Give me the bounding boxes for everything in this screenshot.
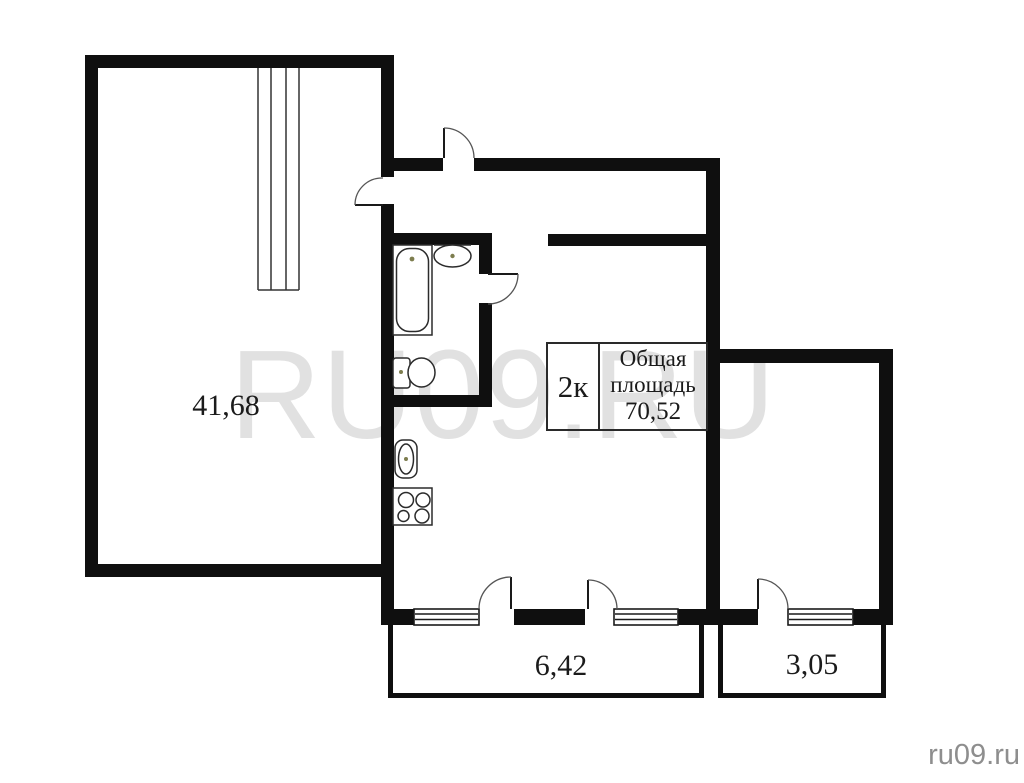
wall-segment — [381, 204, 394, 625]
floor-plan-page: RU09.RU — [0, 0, 1024, 783]
total-area-word-2: площадь — [610, 372, 695, 398]
total-area-box: 2к Общая площадь 70,52 — [546, 342, 708, 431]
wall-segment — [474, 158, 720, 171]
bath-sink-drain — [450, 254, 454, 258]
wall-segment — [381, 55, 394, 177]
bath-sink — [434, 245, 471, 267]
balcony-main-area-label: 6,42 — [535, 649, 588, 683]
apartment-type-label: 2к — [548, 344, 600, 429]
total-area-value: 70,52 — [625, 398, 681, 426]
watermark-corner: ru09.ru — [916, 740, 1020, 772]
wall-segment — [85, 55, 394, 68]
balcony-door-middle — [588, 580, 617, 609]
toilet-dot — [399, 370, 403, 374]
balcony-door-right-room — [758, 579, 788, 609]
wall-segment — [548, 234, 706, 246]
wall-segment-thin — [388, 625, 393, 698]
fixtures — [393, 245, 471, 525]
kitchen-sink-drain — [404, 457, 408, 461]
wall-segment — [678, 609, 758, 625]
wall-segment-thin — [718, 693, 886, 698]
wall-segment — [394, 395, 492, 407]
window — [788, 609, 853, 625]
living-room-area-label: 41,68 — [192, 389, 260, 423]
wall-segment-thin — [388, 693, 704, 698]
toilet — [393, 358, 435, 388]
wall-segment — [85, 564, 394, 577]
bathroom-door — [488, 274, 518, 304]
wall-segment — [85, 55, 98, 577]
total-area-cell: Общая площадь 70,52 — [600, 344, 706, 429]
window — [614, 609, 678, 625]
wall-segment — [706, 158, 720, 625]
wall-segment-thin — [881, 625, 886, 698]
wall-segment — [479, 303, 492, 407]
wall-segment — [879, 349, 893, 625]
wall-segment — [394, 158, 443, 171]
stove — [393, 488, 432, 525]
wall-segment-thin — [718, 625, 723, 698]
wall-segment — [514, 609, 585, 625]
kitchen-sink — [395, 440, 417, 478]
bathtub-drain — [410, 257, 415, 262]
total-area-word-1: Общая — [620, 346, 687, 372]
windows — [414, 609, 853, 625]
entrance-door — [444, 128, 474, 158]
floor-plan-canvas — [0, 0, 1024, 783]
balcony-door-left — [479, 577, 511, 609]
wall-segment — [394, 233, 492, 245]
wall-segment-thin — [699, 625, 704, 698]
walls — [85, 55, 893, 625]
window — [414, 609, 479, 625]
bathtub — [393, 245, 432, 335]
living-room-door — [355, 178, 383, 205]
closet-lines — [258, 68, 299, 290]
balcony-secondary-area-label: 3,05 — [786, 648, 839, 682]
wall-segment — [381, 609, 414, 625]
wall-segment — [720, 349, 893, 363]
wall-segment — [479, 233, 492, 274]
